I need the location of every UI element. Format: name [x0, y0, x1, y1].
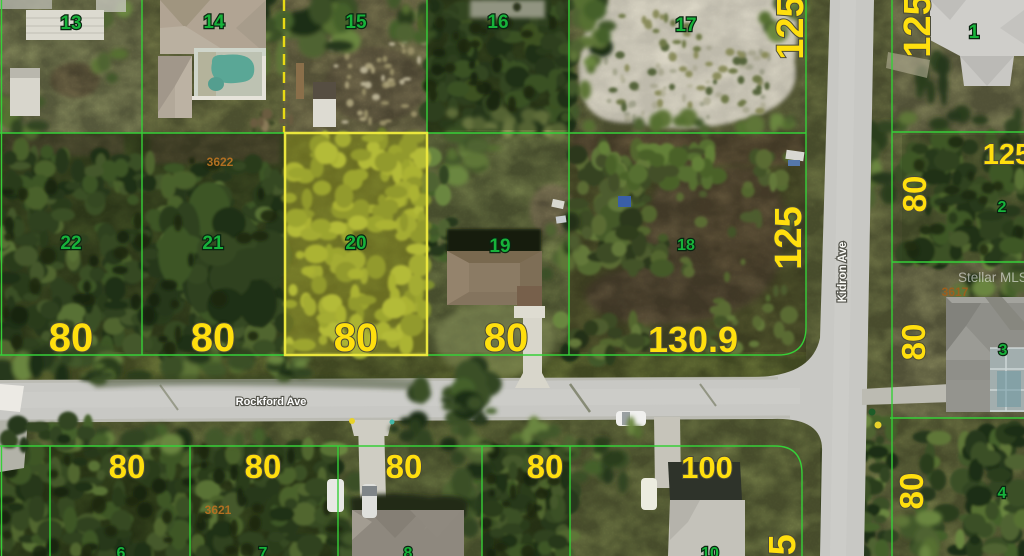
svg-text:80: 80 — [386, 448, 423, 485]
svg-text:6: 6 — [117, 545, 126, 556]
svg-text:Rockford Ave: Rockford Ave — [236, 396, 307, 408]
svg-text:3621: 3621 — [205, 503, 232, 517]
svg-text:80: 80 — [245, 448, 282, 485]
svg-text:100: 100 — [681, 450, 733, 485]
svg-text:1: 1 — [969, 22, 980, 43]
svg-text:18: 18 — [677, 237, 695, 254]
svg-text:125: 125 — [762, 534, 804, 556]
svg-text:17: 17 — [675, 15, 696, 36]
svg-text:8: 8 — [404, 545, 413, 556]
svg-text:Stellar MLS: Stellar MLS — [958, 270, 1024, 285]
svg-text:3622: 3622 — [207, 155, 234, 169]
svg-text:80: 80 — [49, 316, 94, 360]
svg-text:14: 14 — [203, 12, 225, 33]
svg-text:80: 80 — [109, 448, 146, 485]
svg-text:16: 16 — [487, 12, 508, 33]
svg-text:80: 80 — [484, 316, 529, 360]
svg-text:80: 80 — [896, 176, 933, 213]
svg-text:3617: 3617 — [942, 285, 969, 299]
svg-text:10: 10 — [701, 545, 719, 556]
svg-text:3: 3 — [999, 342, 1008, 359]
svg-text:80: 80 — [893, 473, 930, 510]
svg-text:13: 13 — [60, 13, 81, 34]
svg-text:125: 125 — [768, 206, 810, 269]
svg-text:19: 19 — [489, 236, 510, 257]
svg-text:80: 80 — [191, 316, 236, 360]
svg-text:7: 7 — [259, 545, 268, 556]
svg-text:20: 20 — [345, 233, 366, 254]
svg-text:125: 125 — [770, 0, 812, 60]
svg-text:80: 80 — [895, 324, 932, 361]
svg-text:125: 125 — [897, 0, 939, 58]
svg-text:130.9: 130.9 — [648, 319, 738, 360]
svg-text:2: 2 — [998, 199, 1007, 216]
svg-text:15: 15 — [345, 12, 367, 33]
svg-text:125: 125 — [983, 139, 1024, 171]
svg-text:80: 80 — [527, 448, 564, 485]
svg-text:21: 21 — [202, 233, 224, 254]
svg-text:22: 22 — [60, 233, 81, 254]
svg-text:Kidron Ave: Kidron Ave — [837, 242, 849, 303]
svg-text:4: 4 — [998, 485, 1007, 502]
svg-text:80: 80 — [334, 316, 379, 360]
